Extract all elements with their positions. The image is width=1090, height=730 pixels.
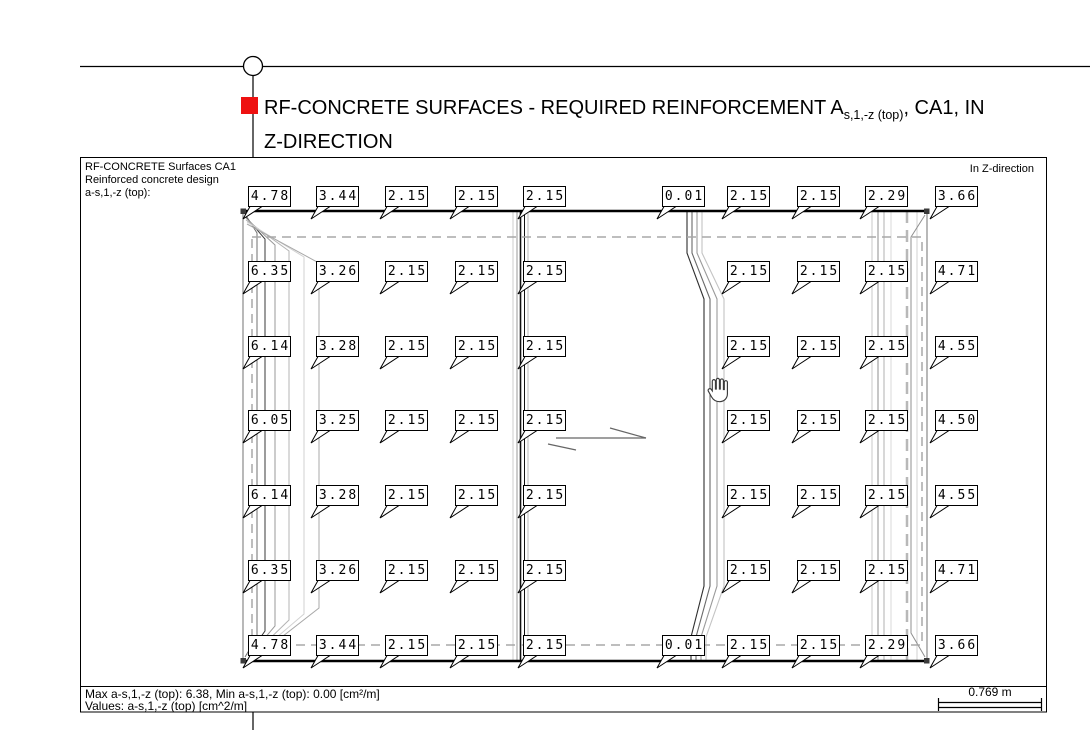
- value-callout: 4.78: [248, 186, 291, 207]
- value-callout: 2.15: [727, 186, 770, 207]
- value-callout: 2.15: [523, 336, 566, 357]
- value-callout: 3.26: [316, 261, 359, 282]
- value-callout: 3.44: [316, 635, 359, 656]
- value-callout: 2.15: [455, 485, 498, 506]
- value-callout: 2.15: [865, 560, 908, 581]
- report-title-line2: Z-DIRECTION: [264, 129, 1044, 156]
- value-callout: 2.15: [797, 410, 840, 431]
- panel-border: [81, 158, 1047, 713]
- value-callout: 3.28: [316, 336, 359, 357]
- value-callout: 4.50: [935, 410, 978, 431]
- value-callout: 2.15: [523, 261, 566, 282]
- value-callout: 3.26: [316, 560, 359, 581]
- value-callout: 2.15: [455, 261, 498, 282]
- value-callout: 3.28: [316, 485, 359, 506]
- value-callout: 4.71: [935, 560, 978, 581]
- value-callout: 4.78: [248, 635, 291, 656]
- value-callout: 2.15: [727, 410, 770, 431]
- value-callout: 2.15: [797, 261, 840, 282]
- value-callout: 2.15: [455, 635, 498, 656]
- value-callout: 2.15: [455, 186, 498, 207]
- value-callout: 2.15: [523, 485, 566, 506]
- value-callout: 2.15: [727, 485, 770, 506]
- value-callout: 4.55: [935, 336, 978, 357]
- value-callout: 4.71: [935, 261, 978, 282]
- value-callout: 2.15: [385, 410, 428, 431]
- footer-values-caption: Values: a-s,1,-z (top) [cm^2/m]: [85, 700, 247, 713]
- red-bullet-icon: [241, 97, 258, 114]
- value-callout: 3.25: [316, 410, 359, 431]
- value-callout: 3.66: [935, 635, 978, 656]
- value-callout: 2.29: [865, 635, 908, 656]
- value-callout: 3.66: [935, 186, 978, 207]
- value-callout: 2.15: [865, 261, 908, 282]
- direction-label: In Z-direction: [970, 163, 1034, 175]
- direction-arrow-icon: [548, 428, 646, 450]
- value-callout: 4.55: [935, 485, 978, 506]
- value-callout: 6.05: [248, 410, 291, 431]
- value-callout: 2.15: [797, 560, 840, 581]
- value-callout: 2.15: [385, 635, 428, 656]
- contour-lines-jog: [687, 211, 724, 661]
- panel-info-line2: Reinforced concrete design: [85, 174, 219, 187]
- value-callout: 3.44: [316, 186, 359, 207]
- value-callout: 2.15: [727, 261, 770, 282]
- panel-info-line1: RF-CONCRETE Surfaces CA1: [85, 161, 236, 174]
- value-callout: 0.01: [662, 186, 705, 207]
- value-callout: 2.15: [523, 560, 566, 581]
- value-callout: 2.15: [385, 261, 428, 282]
- value-callout: 2.15: [385, 485, 428, 506]
- value-callout: 2.15: [797, 485, 840, 506]
- value-callout: 2.15: [797, 635, 840, 656]
- value-callout: 2.15: [523, 635, 566, 656]
- value-callout: 2.15: [385, 560, 428, 581]
- value-callout: 2.15: [865, 485, 908, 506]
- value-callout: 2.15: [523, 410, 566, 431]
- value-callout: 6.14: [248, 336, 291, 357]
- value-callout: 2.15: [727, 635, 770, 656]
- value-callout: 2.15: [523, 186, 566, 207]
- panel-info-line3: a-s,1,-z (top):: [85, 187, 150, 200]
- value-callout: 2.29: [865, 186, 908, 207]
- value-callout: 2.15: [727, 560, 770, 581]
- value-callout: 2.15: [865, 410, 908, 431]
- value-callout: 6.35: [248, 261, 291, 282]
- value-callout: 2.15: [797, 186, 840, 207]
- value-callout: 2.15: [385, 186, 428, 207]
- hand-cursor-icon: [708, 378, 727, 401]
- report-title-line1: RF-CONCRETE SURFACES - REQUIRED REINFORC…: [264, 95, 1044, 129]
- report-title: RF-CONCRETE SURFACES - REQUIRED REINFORC…: [264, 95, 1044, 156]
- value-callout: 2.15: [385, 336, 428, 357]
- value-callout: 2.15: [865, 336, 908, 357]
- value-callout: 2.15: [455, 336, 498, 357]
- report-page: RF-CONCRETE SURFACES - REQUIRED REINFORC…: [0, 0, 1090, 730]
- value-callout: 2.15: [455, 410, 498, 431]
- grid-node-circle-icon: [244, 57, 263, 76]
- scale-bar: [938, 698, 1042, 711]
- value-callout: 2.15: [455, 560, 498, 581]
- value-callout: 2.15: [727, 336, 770, 357]
- value-callout: 2.15: [797, 336, 840, 357]
- value-callout: 6.14: [248, 485, 291, 506]
- scale-label: 0.769 m: [938, 685, 1042, 699]
- value-callout: 6.35: [248, 560, 291, 581]
- dashed-boundary: [252, 237, 922, 645]
- value-callout: 0.01: [662, 635, 705, 656]
